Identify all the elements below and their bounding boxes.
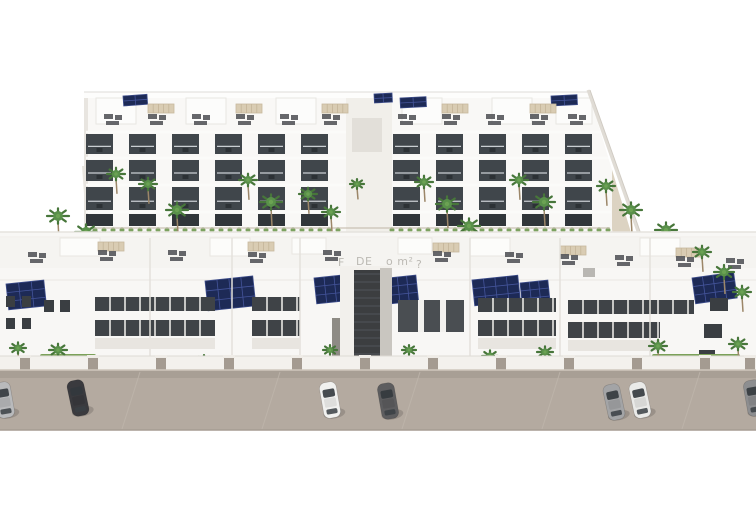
roof-pergola: [433, 243, 459, 252]
roof-pergola: [442, 104, 468, 113]
recessed-terrace: [398, 300, 464, 332]
road-upper-shade: [0, 370, 756, 378]
terrace-pier: [440, 300, 446, 332]
small-window: [710, 298, 728, 311]
wall-pillars: [699, 355, 711, 371]
solar-panel-array: [388, 275, 419, 304]
roof-pergola: [322, 104, 348, 113]
roof-bulkhead: [398, 238, 432, 254]
roof-penthouse-box: [186, 98, 226, 124]
roof-pergola: [530, 104, 556, 113]
roof-pergola: [248, 242, 274, 251]
window-strip: [568, 322, 660, 338]
wall-pillars: [495, 355, 507, 371]
property-render-image: F DE o m² ?: [0, 0, 756, 528]
window-strip: [95, 297, 215, 311]
roof-pergola: [560, 246, 586, 255]
window-strip: [478, 320, 556, 336]
wall-pillars: [19, 355, 31, 371]
small-window: [44, 300, 54, 312]
terrace-pier: [418, 300, 424, 332]
wall-pillars: [223, 355, 235, 371]
small-window: [6, 296, 15, 307]
solar-panel-array: [123, 94, 148, 106]
ground-awning: [568, 340, 660, 351]
window-strip: [95, 320, 215, 336]
ground-awning: [252, 338, 300, 349]
wall-pillars: [631, 355, 643, 371]
small-window: [22, 296, 31, 307]
foreground-blank: [0, 430, 756, 528]
roof-pergola: [148, 104, 174, 113]
window-strip: [478, 298, 556, 312]
street-wall: [0, 356, 756, 371]
wall-pillars: [291, 355, 303, 371]
solar-panel-array: [374, 93, 392, 103]
ac-unit: [583, 268, 595, 277]
wall-pillars: [427, 355, 439, 371]
ground-awning: [95, 338, 215, 349]
roof-pergola: [98, 242, 124, 251]
wall-pillars: [155, 355, 167, 371]
window-strip: [252, 320, 300, 336]
small-window: [22, 318, 31, 329]
solar-panel-array: [400, 97, 426, 108]
roof-bulkhead: [292, 238, 326, 254]
roof-bulkhead: [640, 238, 680, 256]
small-window: [6, 318, 15, 329]
back-parapet: [84, 92, 612, 98]
roof-penthouse-box: [276, 98, 316, 124]
roof-penthouse-box: [492, 98, 532, 124]
back-center-gap: [346, 92, 392, 232]
roof-bulkhead: [470, 238, 510, 256]
back-center-recess: [352, 118, 382, 152]
wall-pillars: [563, 355, 575, 371]
window-strip: [252, 297, 300, 311]
small-window: [704, 324, 722, 338]
roof-bulkhead: [60, 238, 100, 256]
roof-pergola: [236, 104, 262, 113]
small-window: [60, 300, 70, 312]
roof-bulkhead: [210, 238, 250, 256]
scene-svg: [0, 0, 756, 528]
window-strip: [568, 300, 694, 314]
wall-pillars: [744, 355, 756, 371]
wall-pillars: [359, 355, 371, 371]
wall-pillars: [87, 355, 99, 371]
